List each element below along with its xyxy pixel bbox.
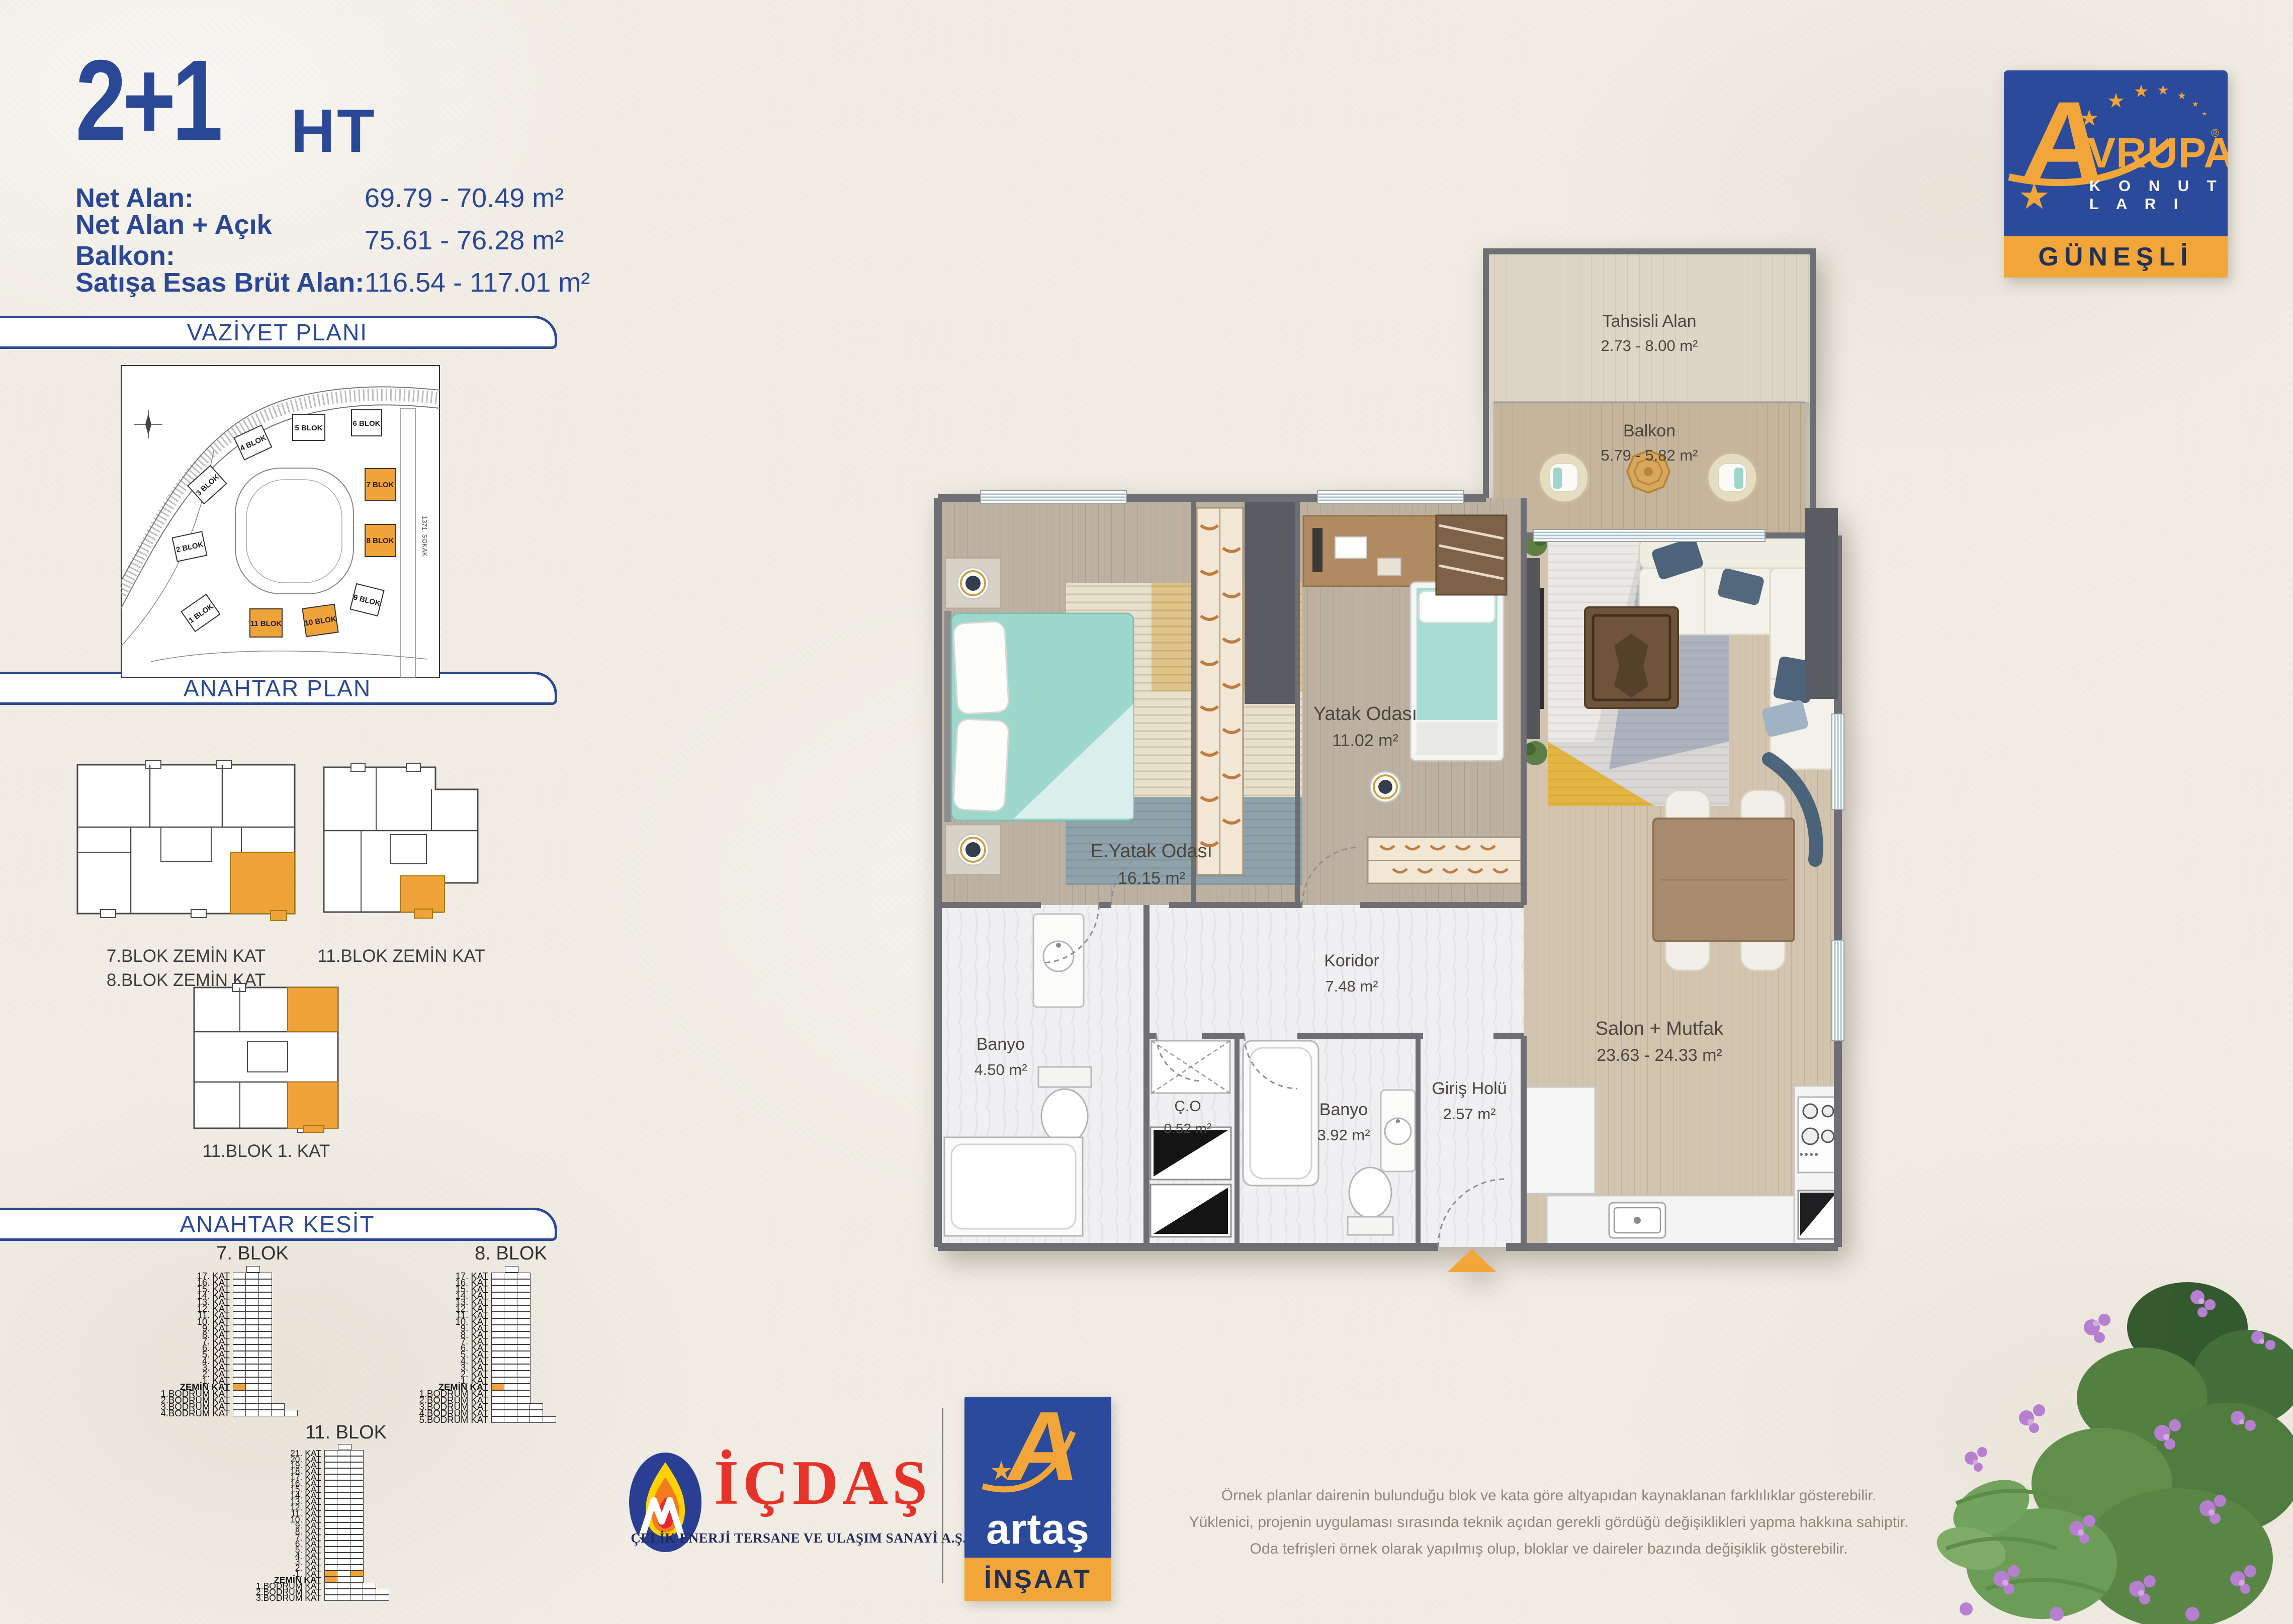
avrupa-emblem: A ★ ★ ★ ★ ★ ★ ★ ★ VRUPA ® K O N U T L A … — [2004, 70, 2228, 236]
artas-emblem: A ★ artaş — [964, 1397, 1111, 1558]
logo-artas: A ★ artaş İNŞAAT — [964, 1397, 1111, 1601]
room-area: 5.79 - 5.82 m² — [1601, 446, 1698, 464]
key-plan-blok7-8 — [70, 757, 302, 938]
entrance-arrow — [1441, 1249, 1503, 1272]
icdas-wordmark: İÇDAŞ — [714, 1447, 931, 1519]
stove-icon — [1798, 1097, 1835, 1172]
icdas-subtitle: ÇELİK ENERJİ TERSANE VE ULAŞIM SANAYİ A.… — [623, 1530, 975, 1546]
room-area: 4.50 m² — [974, 1061, 1027, 1078]
sink-icon — [1609, 1203, 1665, 1238]
room-label: Banyo — [1319, 1100, 1368, 1119]
tower-section-11: 21. KAT20. KAT19. KAT18. KAT17. KAT16. K… — [218, 1444, 389, 1601]
star-icon: ★ — [2177, 89, 2186, 102]
room-label: Tahsisli Alan — [1602, 312, 1696, 331]
flowers-decoration — [1926, 1267, 2293, 1624]
artas-wordmark: artaş — [964, 1505, 1111, 1554]
site-block-7: 7 BLOK — [365, 469, 395, 501]
coffee-table — [1585, 607, 1678, 708]
room-label: Giriş Holü — [1432, 1079, 1507, 1098]
key-plan-blok11-kat1 — [187, 981, 345, 1135]
key-plan-caption-3: 11.BLOK 1. KAT — [187, 1139, 345, 1163]
tower-section-8: 17. KAT16. KAT15. KAT14. KAT13. KAT12. K… — [385, 1266, 556, 1423]
key-plan-blok11-zemin — [316, 760, 487, 931]
star-icon: ★ — [2018, 175, 2051, 217]
tower-title-7: 7. BLOK — [216, 1243, 289, 1265]
room-area: 11.02 m² — [1332, 731, 1398, 750]
area-value: 75.61 - 76.28 m² — [365, 225, 564, 256]
area-row-net-balkon: Net Alan + Açık Balkon: 75.61 - 76.28 m² — [75, 219, 654, 261]
utility-fixtures — [1151, 1041, 1231, 1237]
artas-insaat-band: İNŞAAT — [964, 1558, 1111, 1601]
star-icon: ★ — [2202, 111, 2207, 117]
room-area: 23.63 - 24.33 m² — [1597, 1046, 1722, 1065]
tv-unit — [1527, 558, 1540, 739]
room-label: Koridor — [1324, 951, 1379, 970]
site-block-6: 6 BLOK — [351, 410, 382, 436]
registered-icon: ® — [2211, 127, 2219, 140]
star-icon: ★ — [2079, 106, 2099, 131]
avrupa-wordmark: VRUPA — [2087, 129, 2228, 177]
key-plan-caption-2: 11.BLOK ZEMİN KAT — [316, 944, 487, 968]
room-label: Ç.O — [1174, 1098, 1201, 1115]
tower-title-11: 11. BLOK — [305, 1422, 387, 1443]
tower-title-8: 8. BLOK — [475, 1243, 547, 1265]
star-icon: ★ — [2134, 81, 2149, 102]
area-value: 116.54 - 117.01 m² — [365, 267, 590, 298]
svg-text:6 BLOK: 6 BLOK — [352, 419, 380, 428]
area-label: Net Alan + Açık Balkon: — [75, 209, 365, 272]
star-icon: ★ — [990, 1456, 1013, 1486]
tower-section-7: 17. KAT16. KAT15. KAT14. KAT13. KAT12. K… — [127, 1266, 298, 1416]
corner-cabinet — [1798, 1191, 1838, 1239]
logo-avrupa-konutlari: A ★ ★ ★ ★ ★ ★ ★ ★ VRUPA ® K O N U T L A … — [2004, 70, 2228, 278]
avrupa-location-band: GÜNEŞLİ — [2004, 236, 2228, 278]
wardrobe — [1197, 508, 1243, 875]
disclaimer-line: Örnek planlar dairenin bulunduğu blok ve… — [1167, 1482, 1931, 1509]
site-block-11: 11 BLOK — [250, 609, 282, 637]
room-area: 3.92 m² — [1317, 1126, 1370, 1144]
room-label: Salon + Mutfak — [1596, 1018, 1724, 1039]
room-label: E.Yatak Odası — [1091, 841, 1212, 862]
site-block-10: 10 BLOK — [302, 604, 338, 637]
floor-plan: Tahsisli Alan 2.73 - 8.00 m² Balkon 5.79… — [915, 236, 1871, 1272]
area-label: Satışa Esas Brüt Alan: — [75, 267, 365, 298]
disclaimer-line: Oda tefrişleri örnek olarak yapılmış olu… — [1167, 1536, 1931, 1562]
unit-type-main: 2+1 — [75, 43, 219, 158]
speaker-icon — [1370, 772, 1400, 802]
bottom-closet — [1368, 837, 1521, 883]
area-value: 69.79 - 70.49 m² — [365, 183, 564, 214]
svg-text:11 BLOK: 11 BLOK — [250, 619, 282, 628]
room-area: 2.73 - 8.00 m² — [1601, 337, 1698, 354]
room-area: 2.57 m² — [1443, 1105, 1495, 1123]
site-block-8: 8 BLOK — [365, 524, 395, 557]
street-label: 1371. SOKAK — [421, 516, 428, 557]
section-header-site-plan: VAZİYET PLANI — [0, 316, 557, 349]
room-area: 7.48 m² — [1325, 977, 1378, 995]
speaker-icon — [957, 568, 989, 599]
speaker-icon — [957, 834, 989, 865]
site-plan: 1371. SOKAK 1 BLOK 2 BLOK 3 BLOK 4 BLOK … — [121, 365, 440, 678]
star-icon: ★ — [2157, 82, 2169, 98]
site-block-5: 5 BLOK — [293, 414, 325, 440]
room-label: Banyo — [977, 1035, 1025, 1054]
disclaimer-line: Yüklenici, projenin uygulaması sırasında… — [1167, 1509, 1931, 1536]
highlighted-unit — [288, 987, 338, 1032]
structural-column — [1805, 508, 1838, 699]
structural-column — [1245, 498, 1297, 704]
star-icon: ★ — [2107, 89, 2125, 113]
disclaimer: Örnek planlar dairenin bulunduğu blok ve… — [1167, 1482, 1931, 1562]
svg-text:5 BLOK: 5 BLOK — [295, 424, 322, 432]
room-label: Balkon — [1623, 421, 1675, 440]
svg-text:7 BLOK: 7 BLOK — [366, 481, 394, 489]
section-header-key-section: ANAHTAR KESİT — [0, 1208, 557, 1241]
logo-icdas: İÇDAŞ ÇELİK ENERJİ TERSANE VE ULAŞIM SAN… — [628, 1451, 980, 1587]
unit-type-title: 2+1 HT — [75, 43, 255, 158]
area-row-brut: Satışa Esas Brüt Alan: 116.54 - 117.01 m… — [75, 261, 654, 304]
highlighted-unit — [288, 1082, 338, 1128]
room-area: 0.52 m² — [1164, 1121, 1212, 1136]
unit-type-suffix: HT — [291, 96, 377, 166]
room-area: 16.15 m² — [1118, 869, 1185, 888]
room-label: Yatak Odası — [1313, 703, 1417, 725]
svg-text:8 BLOK: 8 BLOK — [366, 536, 394, 545]
highlighted-unit — [400, 876, 445, 912]
logo-divider — [942, 1408, 943, 1583]
area-info: Net Alan: 69.79 - 70.49 m² Net Alan + Aç… — [75, 177, 654, 304]
konutlari-wordmark: K O N U T L A R I — [2089, 177, 2228, 213]
star-icon: ★ — [2192, 100, 2198, 109]
highlighted-unit — [230, 852, 295, 914]
